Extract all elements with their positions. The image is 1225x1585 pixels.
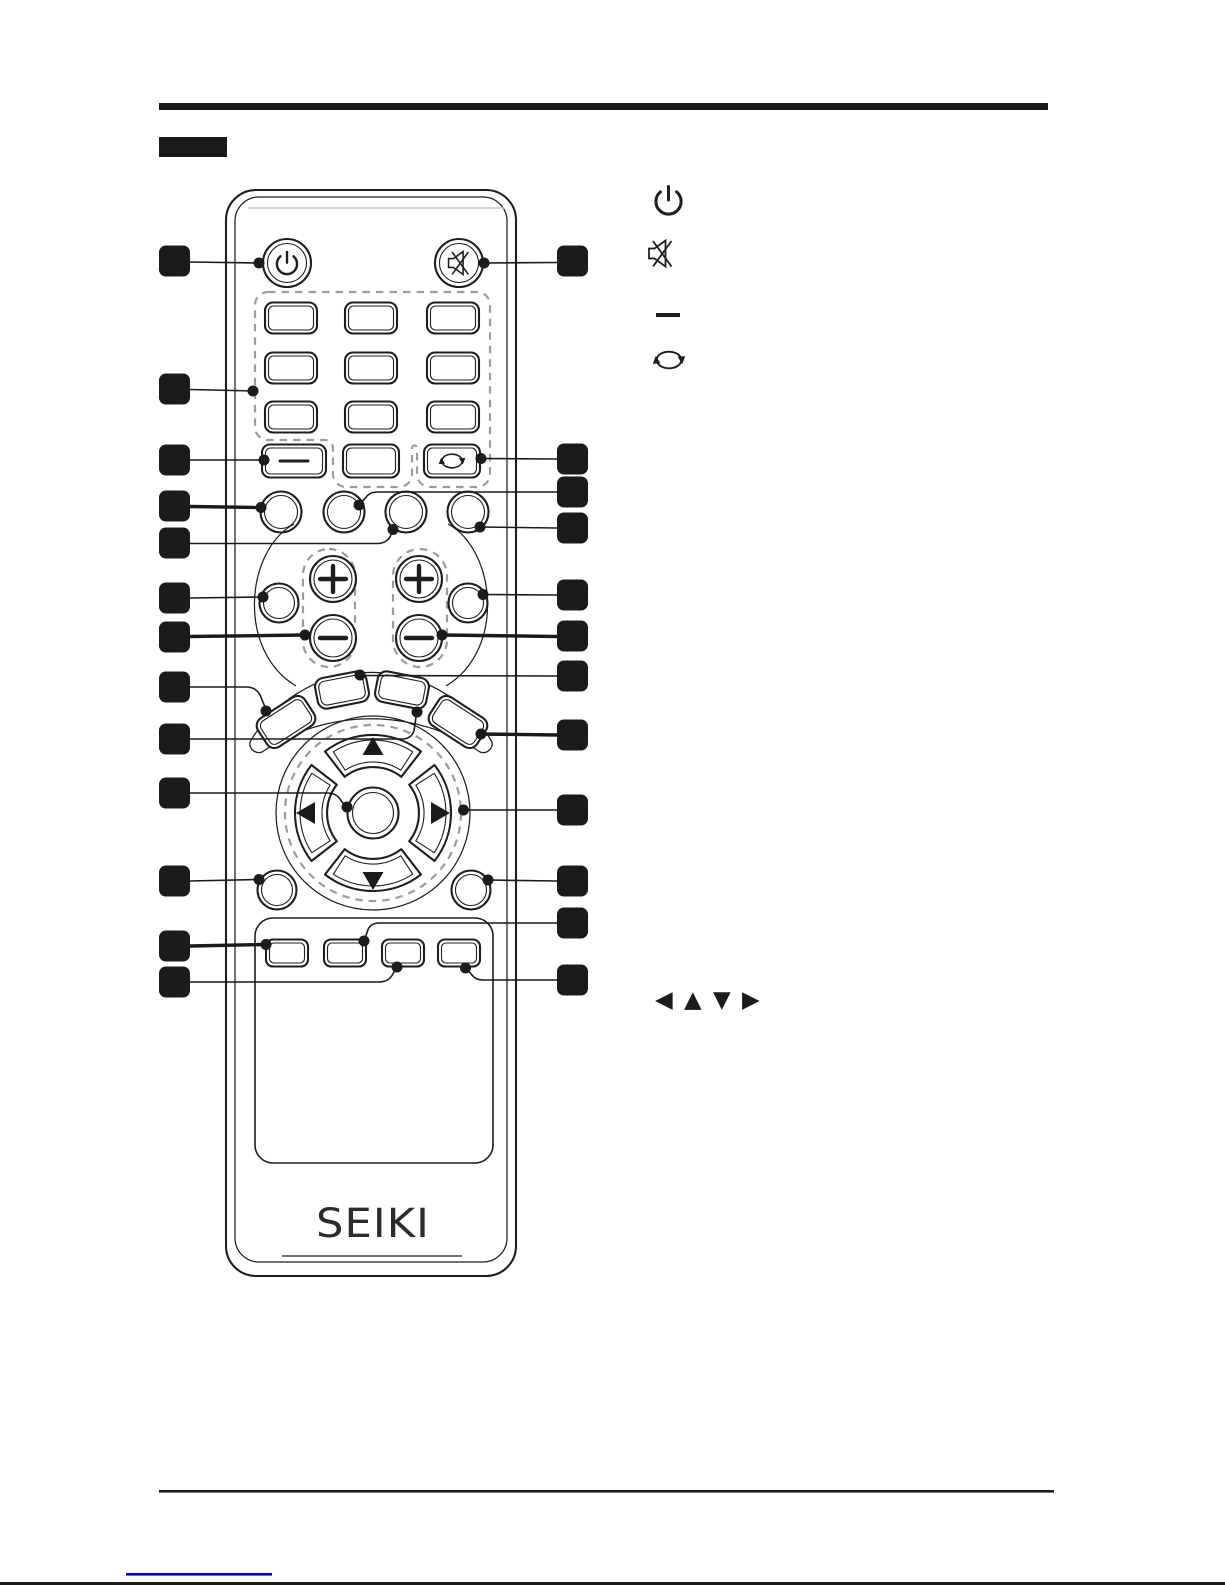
callout-line-right-6 [442,635,557,637]
callout-box-left-5 [159,528,190,559]
numpad-key [345,353,397,384]
callout-dot-left-1 [254,258,265,269]
section-label-box [159,137,227,157]
callout-box-left-11 [159,866,190,897]
callout-dot-right-7 [355,670,366,681]
callout-box-right-11 [557,908,588,939]
callout-box-left-9 [159,724,190,755]
callout-line-right-10 [488,880,557,881]
left-rocker-minus-key [310,615,356,661]
callout-box-right-7 [557,661,588,692]
callout-line-right-7 [361,676,557,677]
callout-dot-right-10 [483,875,494,886]
callout-dot-left-7 [300,630,311,641]
callout-box-right-4 [557,513,588,544]
numpad-key [345,402,397,433]
callout-dot-left-4 [256,502,267,513]
left-rocker-plus-key [310,556,356,602]
legend-nav-arrows: ◀ ▲ ▼ ▶ [655,987,762,1013]
callout-dot-right-2 [476,453,487,464]
callout-box-left-13 [159,967,190,998]
callout-line-left-7 [190,635,305,637]
number-pad [265,303,479,433]
callout-box-right-8 [557,720,588,751]
callout-box-left-7 [159,622,190,653]
callout-dot-left-6 [258,592,269,603]
callout-dot-left-13 [392,962,403,973]
callout-box-left-10 [159,778,190,809]
top-rule [159,103,1048,110]
legend-power-icon [656,187,681,215]
callout-box-left-1 [159,246,190,277]
callout-box-left-6 [159,583,190,614]
right-rocker-minus-key [396,615,442,661]
footer-rule [159,1490,1054,1493]
legend-rotate-icon [653,352,685,369]
callout-dot-right-3 [354,500,365,511]
legend-column: ◀ ▲ ▼ ▶ [649,187,762,1014]
rotate-key [424,445,480,478]
small-key-1 [266,940,308,967]
mute-button [435,239,483,287]
footer [0,1490,1225,1585]
right-rocker-plus-key [396,556,442,602]
callout-line-right-1 [484,263,557,264]
callout-dot-right-4 [475,522,486,533]
callout-box-left-3 [159,445,190,476]
callout-box-right-1 [557,246,588,277]
callout-dot-right-6 [437,630,448,641]
blank-key [343,445,399,478]
round-key-1 [261,492,302,533]
numpad-key [265,402,317,433]
footer-link-underline[interactable] [126,1573,272,1576]
callout-line-right-8 [481,734,557,735]
callout-dot-left-8 [261,706,272,717]
round-key-2 [324,492,365,533]
callout-box-left-8 [159,672,190,703]
callout-dot-left-11 [254,874,265,885]
callout-line-left-12 [190,945,266,947]
remote-illustration: SEIKI [226,190,516,1276]
callout-dot-right-5 [478,589,489,600]
callout-box-left-4 [159,491,190,522]
callout-box-right-2 [557,444,588,475]
callout-line-left-6 [190,597,263,598]
callout-line-right-5 [483,595,557,596]
callout-line-left-1 [190,262,259,263]
callout-dot-left-9 [412,707,423,718]
callout-dot-right-8 [476,729,487,740]
callout-box-right-10 [557,866,588,897]
callout-box-left-12 [159,931,190,962]
numpad-key [427,353,479,384]
brand-logo: SEIKI [316,1201,430,1247]
callout-dot-left-12 [261,939,272,950]
callout-box-right-5 [557,580,588,611]
numpad-key [427,303,479,334]
callout-dot-left-2 [248,386,259,397]
numpad-key [265,353,317,384]
small-key-4 [438,940,480,967]
callout-dot-right-9 [458,805,469,816]
callout-line-left-4 [190,507,261,508]
callout-box-right-9 [557,795,588,826]
callout-dot-left-3 [259,455,270,466]
callout-box-left-2 [159,374,190,405]
callout-dot-right-11 [359,936,370,947]
callout-line-right-4 [480,527,557,528]
small-key-3 [382,940,424,967]
numpad-key [427,402,479,433]
callout-line-right-2 [481,459,557,460]
ok-key [348,788,399,839]
callout-box-right-3 [557,477,588,508]
callout-dot-left-5 [388,524,399,535]
power-button [263,239,311,287]
callout-dot-left-10 [342,802,353,813]
numpad-key [345,303,397,334]
dash-key [262,445,326,478]
callout-box-right-12 [557,965,588,996]
callout-dot-right-12 [460,963,471,974]
legend-mute-icon [649,241,672,267]
left-side-round-key [260,584,299,623]
numpad-key [265,303,317,334]
callout-dot-right-1 [479,258,490,269]
callout-box-right-6 [557,621,588,652]
manual-page: SEIKI [0,0,1225,1585]
header [159,103,1048,157]
